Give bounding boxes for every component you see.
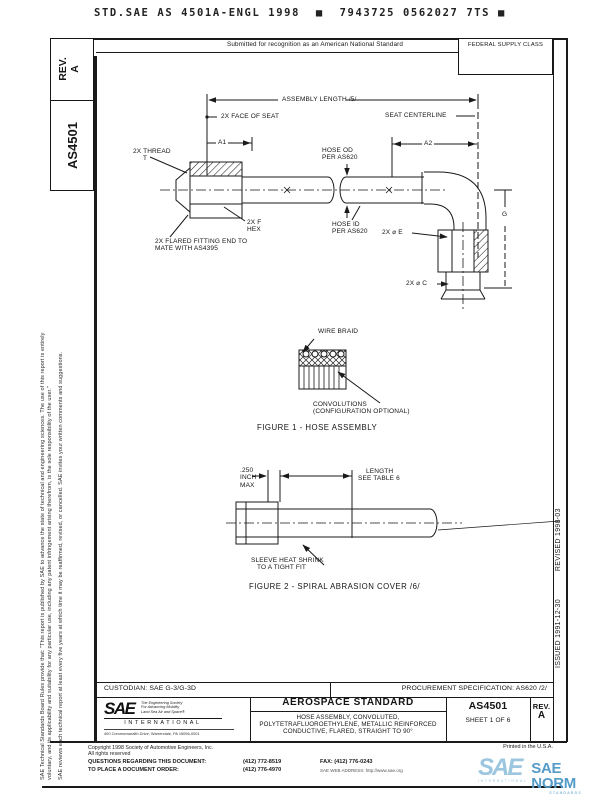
length-label: LENGTH SEE TABLE 6 bbox=[358, 468, 400, 483]
order-phone: (412) 776-4970 bbox=[243, 767, 281, 773]
dia-e-label: 2X ⌀ E bbox=[382, 229, 403, 236]
figure-linework bbox=[0, 0, 600, 798]
procurement-text: PROCUREMENT SPECIFICATION: AS620 /2/ bbox=[335, 685, 547, 692]
sae-norm-mark: SAE INTERNATIONAL bbox=[478, 757, 527, 783]
thread-line2: T bbox=[133, 155, 171, 162]
aerospace-standard-heading: AEROSPACE STANDARD bbox=[250, 699, 446, 706]
titleblock-rev-value: A bbox=[530, 712, 553, 719]
titleblock-doc-number: AS4501 bbox=[446, 703, 530, 710]
figure1-caption: FIGURE 1 - HOSE ASSEMBLY bbox=[257, 424, 377, 431]
sae-norm-logo: SAE INTERNATIONAL SAE NORM STANDARDS bbox=[478, 757, 600, 795]
questions-phone: (412) 772-8519 bbox=[243, 759, 281, 765]
printed-in-usa: Printed in the U.S.A. bbox=[450, 744, 553, 750]
hose-od-line1: HOSE OD bbox=[322, 147, 358, 154]
sheet-number: SHEET 1 OF 6 bbox=[446, 717, 530, 724]
fax-number: FAX: (412) 776-0243 bbox=[320, 759, 373, 765]
hose-od-line2: PER AS620 bbox=[322, 154, 358, 161]
custodian-divider bbox=[330, 682, 331, 697]
assembly-length-label: ASSEMBLY LENGTH /5/ bbox=[280, 96, 346, 103]
convolutions-label: CONVOLUTIONS (CONFIGURATION OPTIONAL) bbox=[313, 401, 410, 416]
aerospace-heading-rule bbox=[250, 711, 446, 712]
wire-braid-label: WIRE BRAID bbox=[318, 328, 358, 335]
sae-norm-wordmark: SAE NORM STANDARDS bbox=[531, 757, 600, 795]
hex-line1: 2X F bbox=[247, 219, 261, 226]
dim-a2-label: A2 bbox=[422, 140, 434, 147]
max-line1: .250 bbox=[240, 467, 257, 474]
questions-label: QUESTIONS REGARDING THIS DOCUMENT: bbox=[88, 759, 206, 765]
sleeve-line2: TO A TIGHT FIT bbox=[251, 564, 324, 571]
hose-id-label: HOSE ID PER AS620 bbox=[332, 221, 368, 236]
sae-norm-sae-icon: SAE bbox=[478, 757, 527, 779]
dia-c-label: 2X ⌀ C bbox=[406, 280, 427, 287]
titleblock-line1 bbox=[96, 682, 553, 683]
sae-logo: SAE bbox=[104, 699, 134, 719]
sae-norm-name: SAE NORM bbox=[531, 761, 600, 791]
thread-line1: 2X THREAD bbox=[133, 148, 171, 155]
thread-label: 2X THREAD T bbox=[133, 148, 171, 163]
copyright-line-2: All rights reserved bbox=[88, 751, 130, 757]
sleeve-label: SLEEVE HEAT SHRINK TO A TIGHT FIT bbox=[251, 557, 324, 572]
title-line-3: CONDUCTIVE, FLARED, STRAIGHT TO 90° bbox=[250, 728, 446, 735]
dim-a1-label: A1 bbox=[216, 139, 228, 146]
convolutions-line2: (CONFIGURATION OPTIONAL) bbox=[313, 408, 410, 415]
seat-centerline-label: SEAT CENTERLINE bbox=[385, 112, 447, 119]
sae-tagline: The Engineering Society For Advancing Mo… bbox=[141, 701, 185, 714]
flared-fitting-label: 2X FLARED FITTING END TO MATE WITH AS439… bbox=[155, 238, 247, 253]
hose-id-line1: HOSE ID bbox=[332, 221, 368, 228]
convolutions-line1: CONVOLUTIONS bbox=[313, 401, 410, 408]
web-address: SAE WEB ADDRESS: http://www.sae.org bbox=[320, 768, 403, 773]
sleeve-line1: SLEEVE HEAT SHRINK bbox=[251, 557, 324, 564]
hose-id-line2: PER AS620 bbox=[332, 228, 368, 235]
flared-line1: 2X FLARED FITTING END TO bbox=[155, 238, 247, 245]
max-line3: MAX bbox=[240, 482, 257, 489]
flared-line2: MATE WITH AS4395 bbox=[155, 245, 247, 252]
sae-address: 400 Commonwealth Drive, Warrendale, PA 1… bbox=[104, 729, 234, 736]
max-line2: INCH bbox=[240, 474, 257, 481]
scanned-standard-page: STD.SAE AS 4501A-ENGL 1998 ■ 7943725 056… bbox=[0, 0, 600, 798]
hose-od-label: HOSE OD PER AS620 bbox=[322, 147, 358, 162]
face-of-seat-label: 2X FACE OF SEAT bbox=[221, 113, 279, 120]
sae-international: INTERNATIONAL bbox=[104, 718, 222, 726]
length-line2: SEE TABLE 6 bbox=[358, 475, 400, 482]
hex-label: 2X F HEX bbox=[247, 219, 261, 234]
sae-norm-international: INTERNATIONAL bbox=[478, 779, 527, 783]
sae-tagline-3: Land Sea Air and Space® bbox=[141, 710, 185, 714]
length-line1: LENGTH bbox=[358, 468, 400, 475]
figure2-caption: FIGURE 2 - SPIRAL ABRASION COVER /6/ bbox=[249, 583, 420, 590]
order-label: TO PLACE A DOCUMENT ORDER: bbox=[88, 767, 179, 773]
hex-line2: HEX bbox=[247, 226, 261, 233]
custodian-text: CUSTODIAN: SAE G-3/G-3D bbox=[104, 685, 196, 692]
max-250-label: .250 INCH MAX bbox=[240, 467, 257, 489]
dim-g-label: G bbox=[500, 211, 509, 218]
